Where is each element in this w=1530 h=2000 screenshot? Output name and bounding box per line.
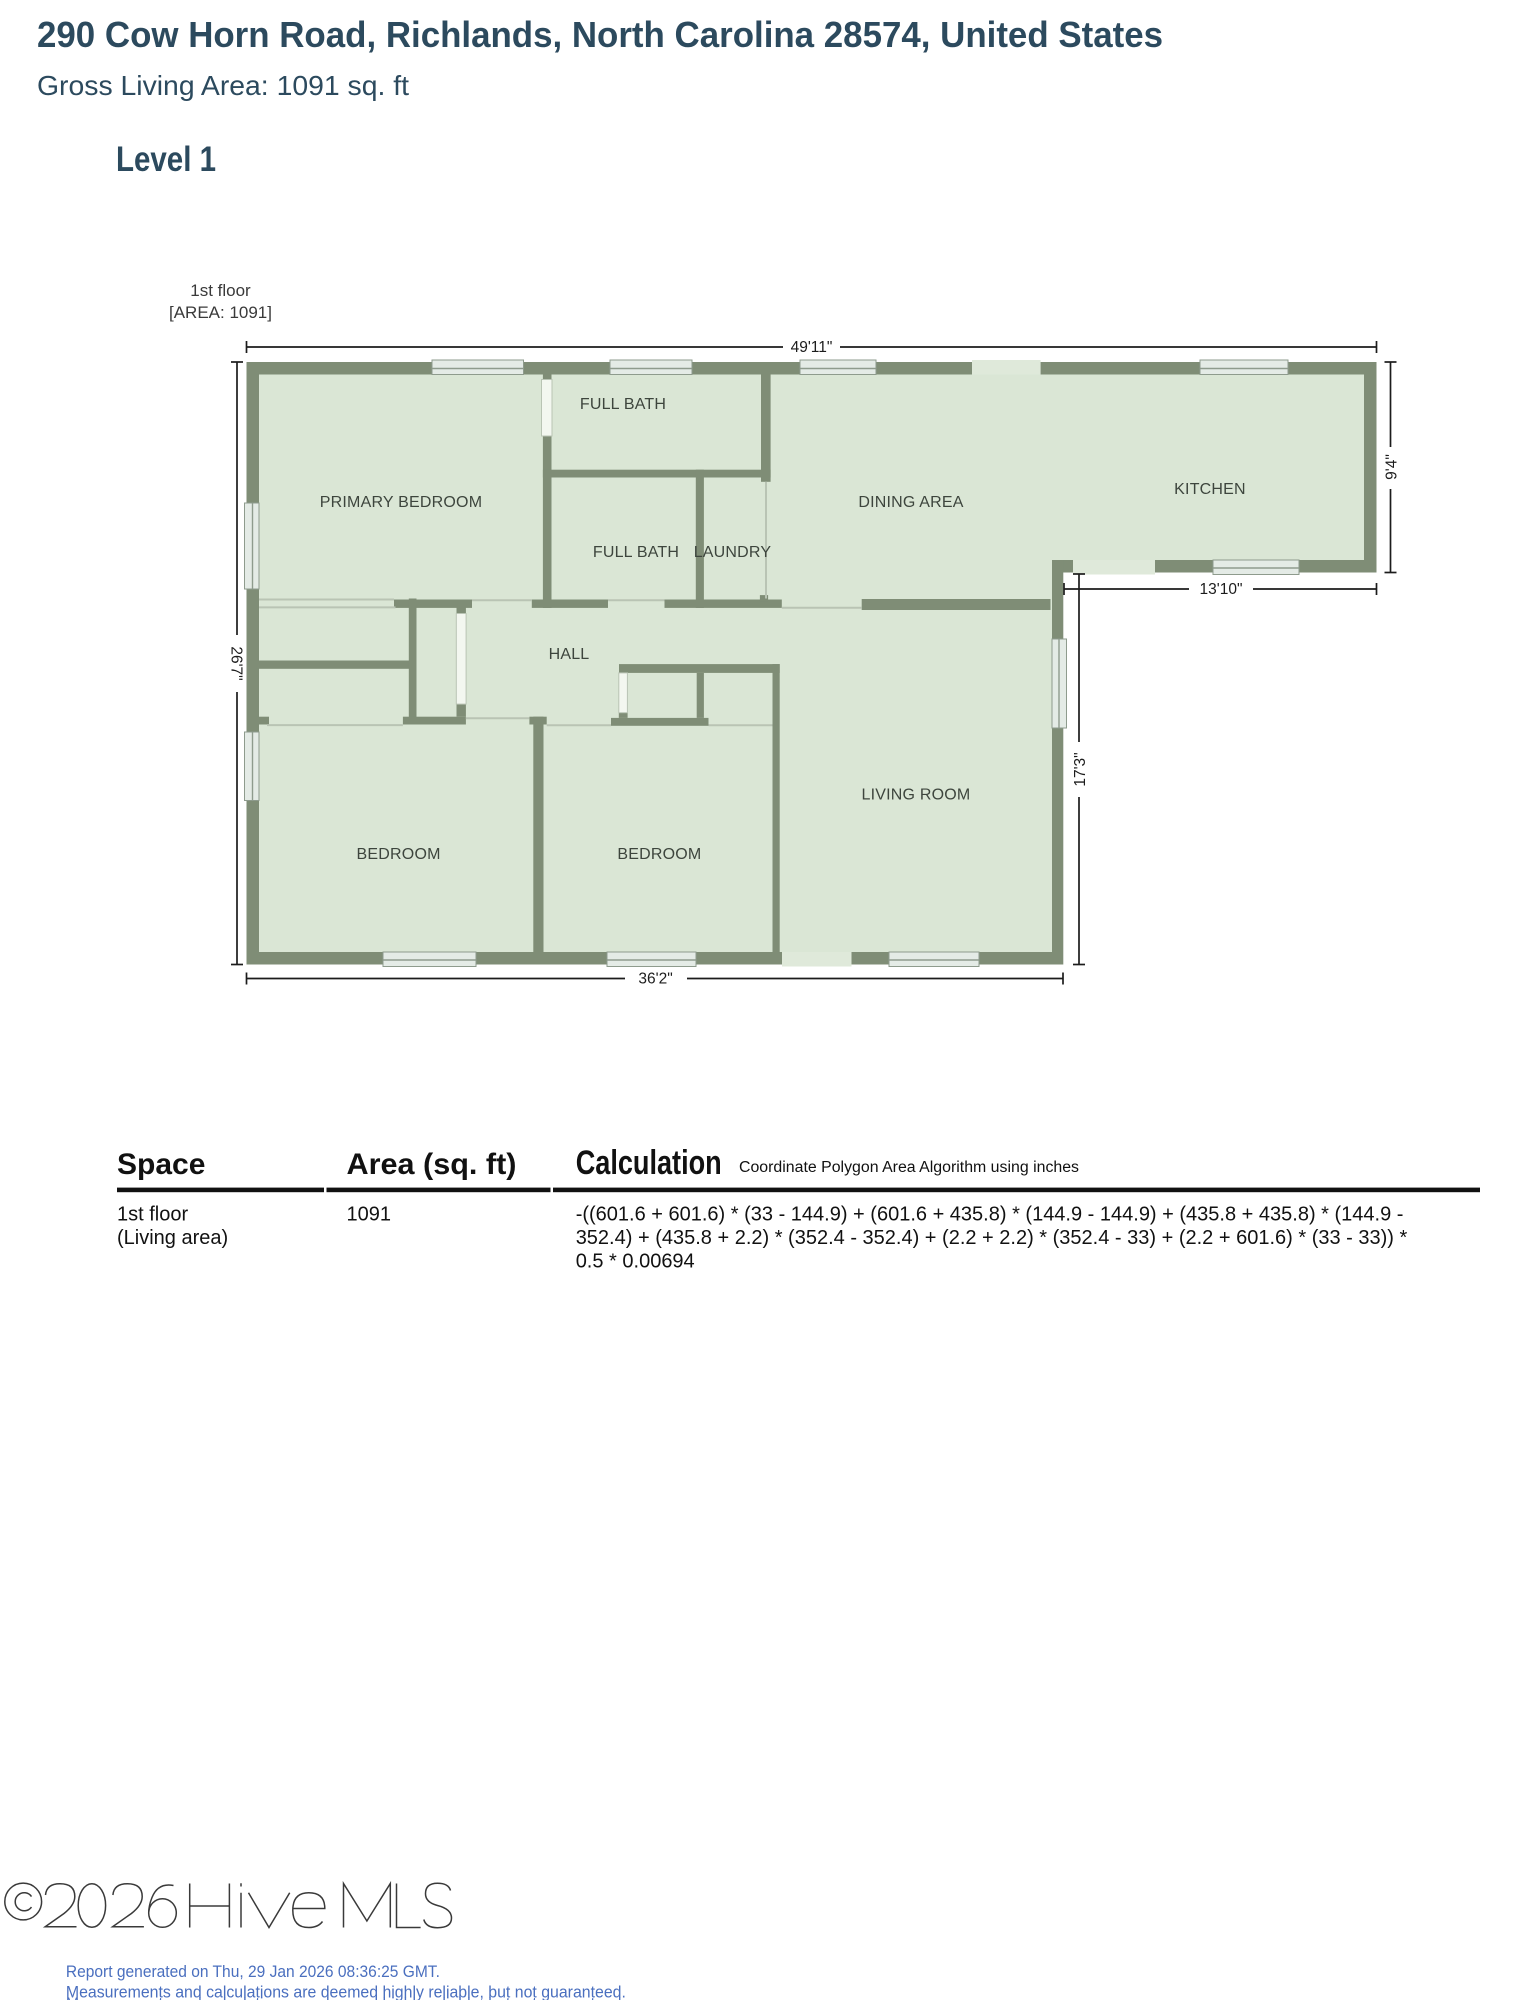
svg-text:LAUNDRY: LAUNDRY <box>694 544 772 561</box>
svg-text:36'2": 36'2" <box>638 971 672 988</box>
svg-text:LIVING ROOM: LIVING ROOM <box>862 787 971 804</box>
svg-text:0.5 * 0.00694: 0.5 * 0.00694 <box>576 1250 695 1272</box>
svg-text:DINING AREA: DINING AREA <box>858 494 963 511</box>
svg-text:PRIMARY BEDROOM: PRIMARY BEDROOM <box>320 494 482 511</box>
svg-text:352.4) + (435.8 + 2.2) * (352.: 352.4) + (435.8 + 2.2) * (352.4 - 352.4)… <box>576 1227 1408 1249</box>
svg-text:26'7": 26'7" <box>228 646 245 680</box>
svg-text:[AREA: 1091]: [AREA: 1091] <box>169 303 272 322</box>
svg-text:HALL: HALL <box>549 646 590 663</box>
svg-text:1st floor: 1st floor <box>117 1203 188 1225</box>
svg-text:Gross Living Area: 1091 sq. ft: Gross Living Area: 1091 sq. ft <box>37 70 409 101</box>
svg-text:13'10": 13'10" <box>1200 581 1243 598</box>
svg-text:290 Cow Horn Road, Richlands,: 290 Cow Horn Road, Richlands, North Caro… <box>37 14 1163 55</box>
svg-text:Area (sq. ft): Area (sq. ft) <box>347 1148 517 1181</box>
svg-text:17'3": 17'3" <box>1072 752 1089 786</box>
svg-text:Measurements and calculations: Measurements and calculations are deemed… <box>66 1995 626 2000</box>
svg-text:FULL BATH: FULL BATH <box>580 396 666 413</box>
svg-text:BEDROOM: BEDROOM <box>617 846 701 863</box>
svg-text:Calculation: Calculation <box>576 1144 722 1182</box>
svg-text:1st floor: 1st floor <box>190 281 251 300</box>
svg-text:KITCHEN: KITCHEN <box>1174 481 1246 498</box>
svg-text:49'11": 49'11" <box>791 339 833 356</box>
svg-text:FULL BATH: FULL BATH <box>593 544 679 561</box>
svg-text:Coordinate Polygon Area Algori: Coordinate Polygon Area Algorithm using … <box>739 1159 1079 1176</box>
svg-text:-((601.6 + 601.6) * (33 - 144.: -((601.6 + 601.6) * (33 - 144.9) + (601.… <box>576 1203 1404 1225</box>
svg-text:Space: Space <box>117 1148 205 1181</box>
svg-text:Report generated on Thu, 29 Ja: Report generated on Thu, 29 Jan 2026 08:… <box>66 1963 440 1981</box>
svg-text:9'4": 9'4" <box>1384 454 1401 480</box>
svg-text:Level 1: Level 1 <box>116 140 216 179</box>
svg-text:(Living area): (Living area) <box>117 1227 228 1249</box>
svg-text:1091: 1091 <box>347 1203 392 1225</box>
svg-text:BEDROOM: BEDROOM <box>357 846 441 863</box>
